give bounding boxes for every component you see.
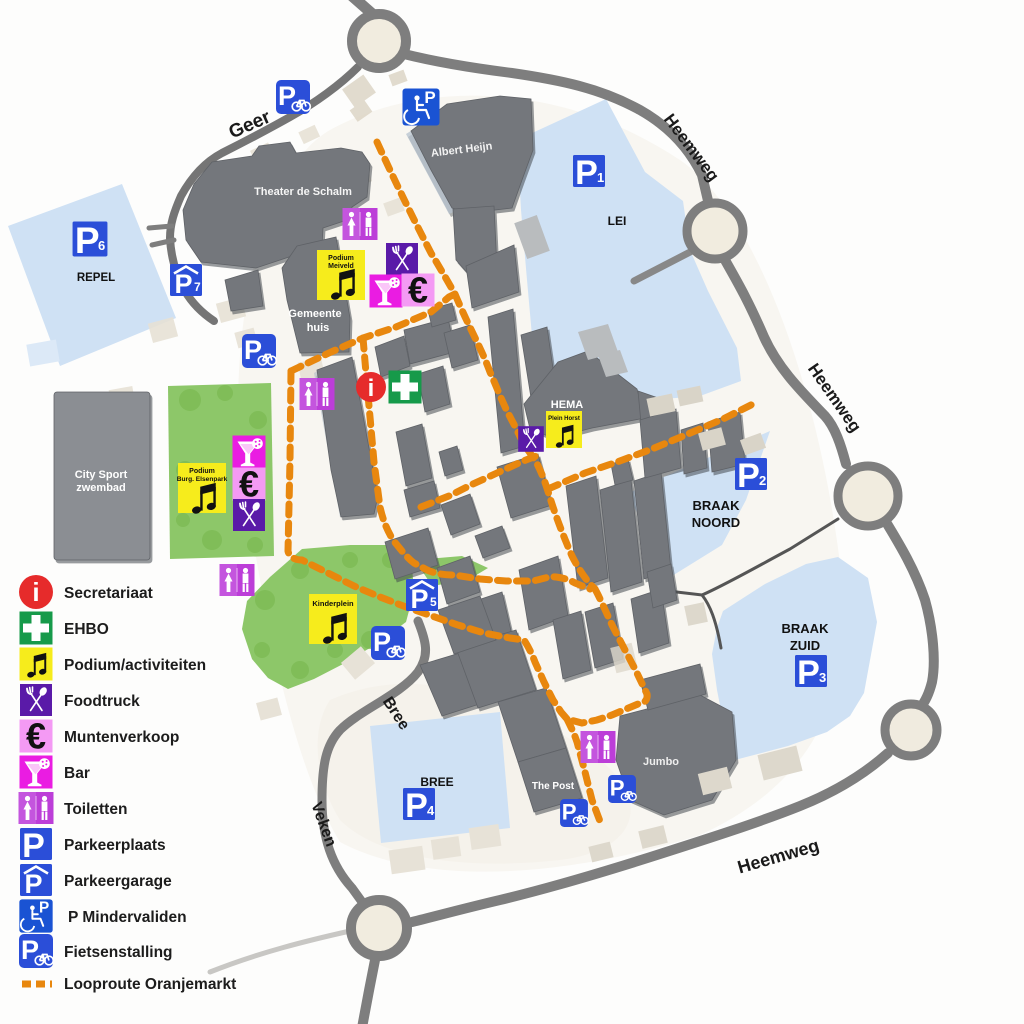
- svg-text:huis: huis: [307, 322, 330, 334]
- svg-text:NOORD: NOORD: [692, 515, 740, 530]
- svg-text:Kinderplein: Kinderplein: [312, 599, 354, 608]
- svg-text:BRAAK: BRAAK: [693, 498, 741, 513]
- svg-text:zwembad: zwembad: [76, 482, 126, 494]
- svg-text:P Mindervaliden: P Mindervaliden: [68, 909, 187, 926]
- svg-text:Gemeente: Gemeente: [288, 308, 341, 320]
- svg-text:Parkeerplaats: Parkeerplaats: [64, 837, 166, 854]
- svg-text:EHBO: EHBO: [64, 621, 109, 638]
- svg-text:7: 7: [194, 280, 201, 294]
- svg-text:City Sport: City Sport: [75, 469, 128, 481]
- svg-text:ZUID: ZUID: [790, 638, 820, 653]
- svg-text:Muntenverkoop: Muntenverkoop: [64, 729, 179, 746]
- svg-text:Foodtruck: Foodtruck: [64, 693, 140, 710]
- svg-text:Toiletten: Toiletten: [64, 801, 127, 818]
- svg-text:Burg. Elsenpark: Burg. Elsenpark: [177, 476, 228, 483]
- svg-text:2: 2: [759, 473, 766, 488]
- svg-text:BREE: BREE: [420, 775, 453, 789]
- svg-text:Plein Horst: Plein Horst: [548, 416, 580, 422]
- svg-text:Jumbo: Jumbo: [643, 756, 679, 768]
- svg-text:Theater de Schalm: Theater de Schalm: [254, 186, 352, 198]
- svg-text:HEMA: HEMA: [551, 399, 583, 411]
- svg-text:The Post: The Post: [532, 781, 575, 792]
- svg-text:1: 1: [597, 170, 604, 185]
- svg-text:LEI: LEI: [608, 214, 627, 228]
- svg-text:Podium/activiteiten: Podium/activiteiten: [64, 657, 206, 674]
- svg-text:Podium: Podium: [189, 468, 215, 475]
- svg-text:Parkeergarage: Parkeergarage: [64, 873, 172, 890]
- svg-text:5: 5: [430, 595, 437, 609]
- svg-text:Looproute Oranjemarkt: Looproute Oranjemarkt: [64, 976, 236, 993]
- svg-text:4: 4: [427, 803, 435, 818]
- svg-text:Bar: Bar: [64, 765, 90, 782]
- svg-text:Meiveld: Meiveld: [328, 263, 354, 270]
- svg-text:Secretariaat: Secretariaat: [64, 585, 153, 602]
- svg-text:Podium: Podium: [328, 255, 354, 262]
- svg-text:3: 3: [819, 670, 826, 685]
- svg-text:i: i: [368, 375, 375, 402]
- svg-text:i: i: [32, 577, 39, 607]
- svg-text:6: 6: [98, 238, 105, 253]
- svg-text:BRAAK: BRAAK: [782, 621, 830, 636]
- svg-text:Fietsenstalling: Fietsenstalling: [64, 944, 173, 961]
- svg-text:REPEL: REPEL: [77, 272, 115, 284]
